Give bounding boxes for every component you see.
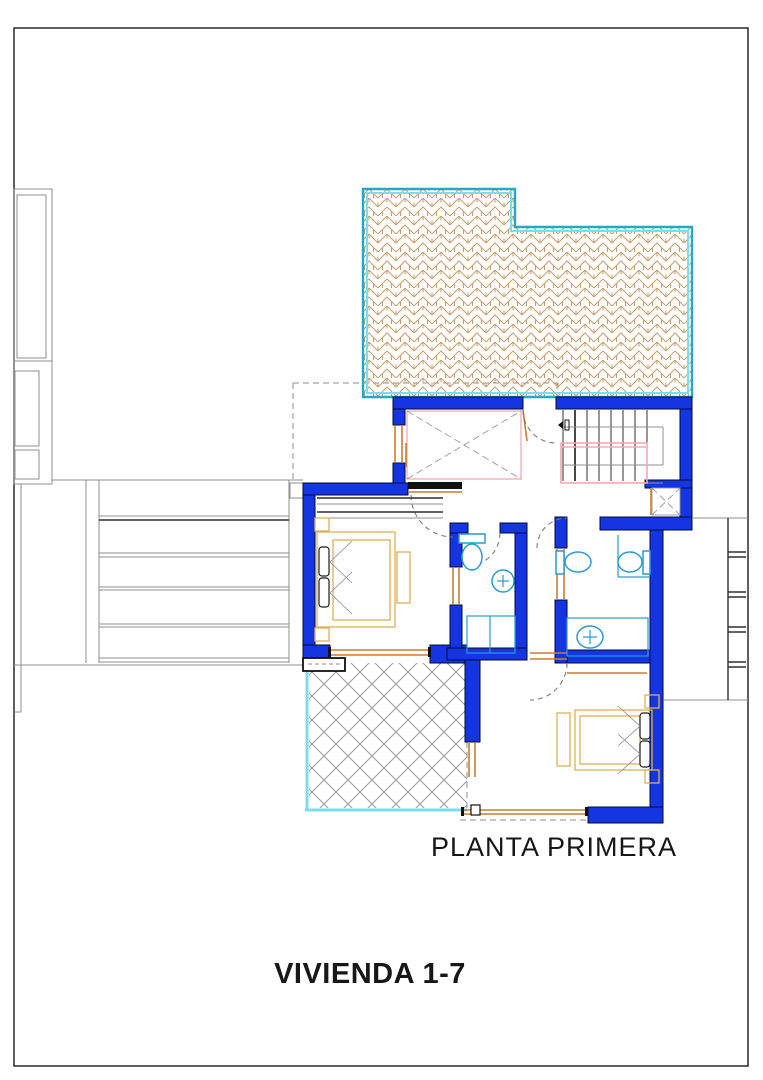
wall-bath1-right [515, 533, 527, 655]
wall-stair-right [680, 409, 692, 480]
wall-terrace-separator [465, 660, 480, 742]
stair-treads [563, 410, 647, 481]
wall-east-step [600, 517, 692, 530]
bed-1-pillow [319, 547, 329, 576]
wall-bedroom1-top [303, 483, 408, 495]
adjacent-building-left [14, 189, 52, 712]
unit-title: VIVIENDA 1-7 [274, 958, 466, 990]
stair-handrail [561, 443, 647, 483]
bidet-tank [643, 551, 650, 574]
adjacent-steps-band [14, 480, 303, 665]
wall-bedroom2-bottom [588, 807, 663, 823]
bed-1-pillow [319, 578, 329, 607]
wall-west [303, 495, 315, 645]
bed-2-pillow [640, 741, 650, 767]
bath1-fixtures [459, 534, 515, 653]
staircase [558, 410, 663, 483]
vent-black-bar [408, 482, 462, 489]
adjacent-structure-right [663, 518, 748, 700]
toilet-tank [556, 551, 564, 574]
bidet [618, 552, 642, 572]
shaft-east [651, 488, 680, 515]
sheet-border [14, 28, 748, 1066]
wall-top-right [556, 397, 692, 409]
wall-void-left-a [393, 409, 405, 425]
stair-door-leaf-icon [558, 421, 563, 429]
bench-2 [557, 713, 570, 766]
wall-bath2-left-a [555, 517, 567, 548]
bedroom1-furniture [315, 498, 443, 641]
floor-plan-sheet: PLANTA PRIMERA VIVIENDA 1-7 [0, 0, 763, 1080]
toilet-tank [459, 534, 485, 543]
wall-east [650, 530, 663, 823]
door-arc-bedroom1 [411, 495, 453, 537]
toilet [462, 544, 482, 570]
terrace-lower [305, 663, 467, 811]
nightstand [315, 518, 329, 531]
terrace-upper-tiling [363, 189, 692, 397]
door-arc-terrace [523, 410, 556, 443]
bedroom2-furniture [557, 695, 659, 783]
door-arc-bedroom2 [530, 663, 567, 700]
bed-2-pillow [640, 713, 650, 739]
railing-ticks [728, 552, 746, 667]
bath2-fixtures [556, 535, 650, 656]
bench-1 [397, 552, 410, 603]
floor-title: PLANTA PRIMERA [431, 832, 677, 862]
wall-under-stairs [645, 480, 692, 488]
terrace-lower-tiling [309, 663, 467, 808]
terrace-upper [363, 189, 692, 397]
wall-east-upper [680, 488, 692, 517]
wall-void-left-b [393, 463, 405, 483]
void-shaft [406, 411, 521, 479]
toilet [565, 552, 591, 572]
shower-tray [467, 616, 515, 653]
wall-bath1-top-a [450, 523, 468, 533]
nightstand [315, 628, 329, 641]
wall-bath1-top-b [500, 523, 527, 533]
wall-bath1-left-b [450, 605, 462, 650]
floor-plan-drawing: PLANTA PRIMERA VIVIENDA 1-7 [0, 0, 763, 1080]
wall-top-left [393, 397, 523, 409]
